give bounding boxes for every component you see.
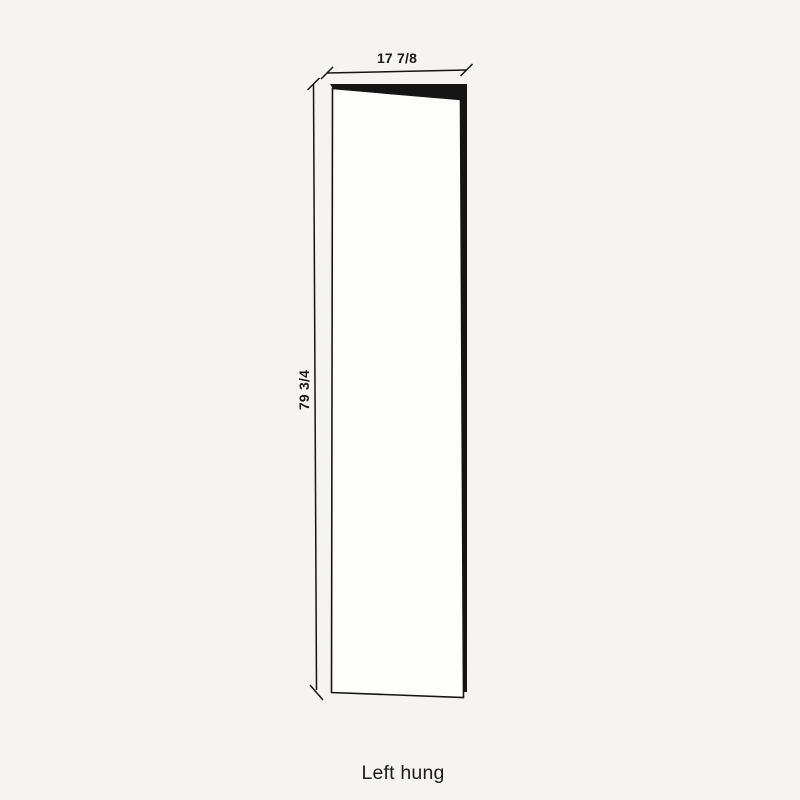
width-dimension-line xyxy=(327,70,467,73)
door-preview-canvas: 17 7/8 79 3/4 Left hung xyxy=(0,0,800,800)
door-diagram-svg xyxy=(0,0,800,800)
height-dimension-label: 79 3/4 xyxy=(295,330,313,450)
width-dimension-label: 17 7/8 xyxy=(337,50,457,66)
door-face xyxy=(332,89,464,698)
height-dimension-line xyxy=(314,84,317,690)
hinge-caption: Left hung xyxy=(0,762,800,785)
